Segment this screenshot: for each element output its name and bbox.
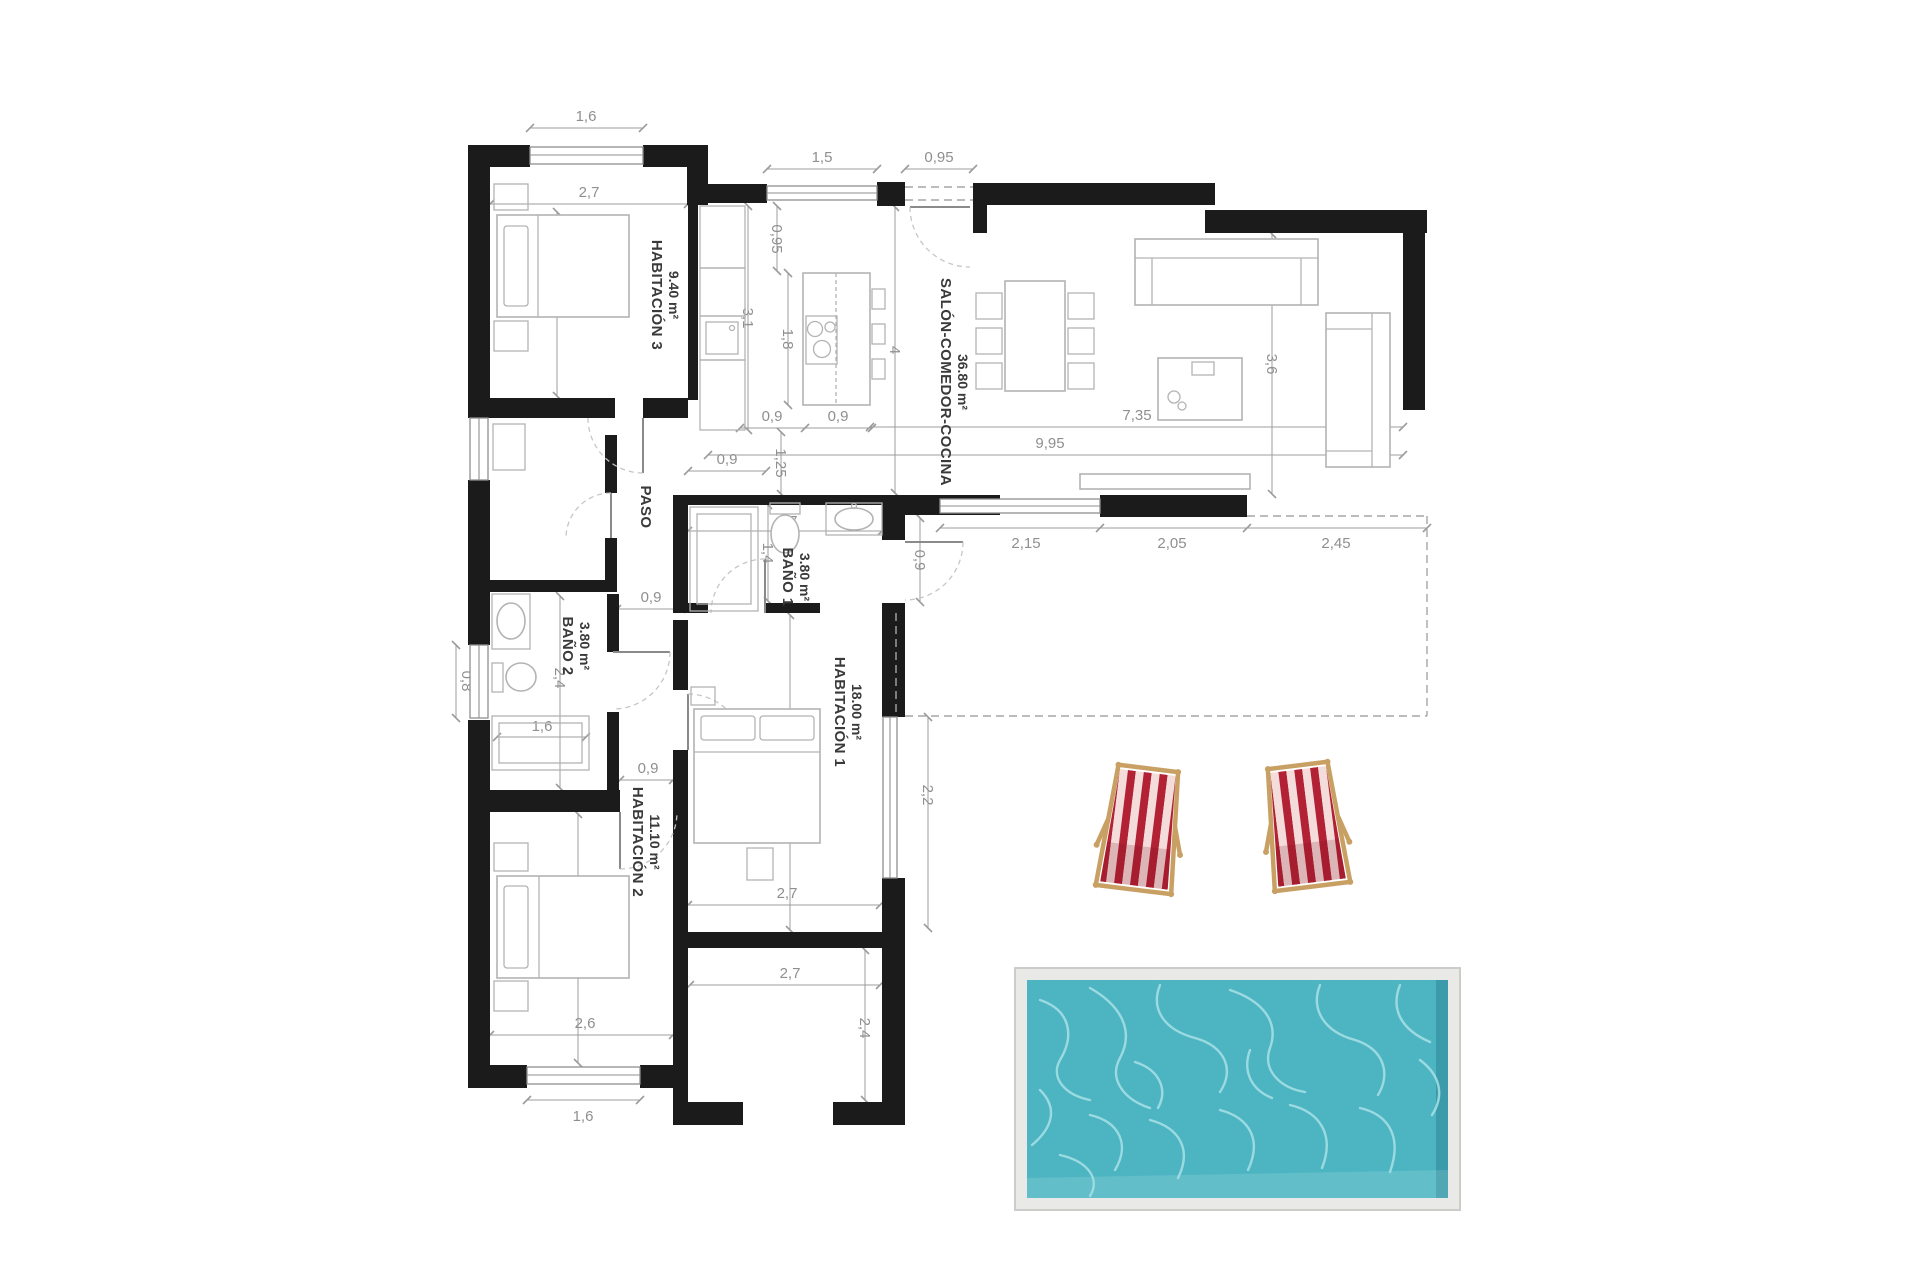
sofa-top	[1135, 239, 1318, 305]
stool	[872, 289, 885, 309]
room-label-paso: PASO	[637, 486, 654, 529]
room-label-bano-2: BAÑO 2	[559, 616, 577, 675]
dim-value: 0,9	[762, 408, 783, 425]
dim-value: 2,2	[919, 785, 936, 806]
window-salon-sliding-door	[940, 499, 1100, 513]
toilet-tank	[492, 663, 503, 692]
dim-salon-length: 9,95	[708, 435, 1403, 455]
stool	[872, 359, 885, 379]
room-area-bano-1: 3.80 m²	[797, 553, 813, 602]
pool	[1015, 968, 1460, 1210]
dim-value: 4	[886, 346, 903, 354]
room-area-habitacion-3: 9.40 m²	[666, 271, 682, 320]
dim-value: 2,15	[1011, 535, 1040, 552]
deck-chair-right	[1253, 757, 1358, 895]
bench	[747, 848, 773, 880]
dim-hab2-door: 0,9	[620, 760, 673, 780]
dim-value: 2,4	[856, 1018, 873, 1039]
window-kitchen-top	[767, 186, 877, 200]
sink	[497, 603, 525, 639]
paso-closet-shelf	[493, 424, 525, 470]
dim-value: 1,5	[812, 149, 833, 166]
dim-value: 0,9	[828, 408, 849, 425]
room-area-habitacion-1: 18.00 m²	[849, 684, 865, 740]
dim-hab2-width: 2,6	[490, 1015, 673, 1035]
room-label-salon: SALÓN-COMEDOR-COCINA	[937, 278, 955, 486]
chair	[1068, 328, 1094, 354]
dim-bano2-shower: 1,6	[497, 718, 586, 737]
dim-value: 0,9	[717, 451, 738, 468]
dim-kitchen-island: 1,8	[779, 273, 796, 405]
dim-value: 2,7	[777, 885, 798, 902]
dim-hab1-width: 2,7	[688, 885, 880, 905]
window-hab1-right	[883, 717, 897, 878]
dim-value: 1,6	[532, 718, 553, 735]
room-label-habitacion-2: HABITACIÓN 2	[629, 787, 647, 897]
dim-value: 1,8	[779, 329, 796, 350]
dim-terrace-open: 2,45	[1247, 528, 1427, 552]
dim-kitchen-depth-upper: 0,95	[768, 206, 785, 271]
dim-entry-opening: 0,95	[905, 149, 973, 169]
dim-value: 0,9	[911, 550, 928, 571]
room-label-habitacion-1: HABITACIÓN 1	[831, 657, 849, 767]
sofa-right	[1326, 313, 1390, 467]
dim-porch-depth: 2,4	[856, 950, 873, 1100]
room-area-bano-2: 3.80 m²	[577, 622, 593, 671]
tv-sideboard	[1080, 474, 1250, 489]
shower	[690, 507, 758, 611]
dining-table	[976, 281, 1094, 391]
window-paso-left	[470, 418, 488, 480]
dim-terrace-side: 2,2	[919, 717, 936, 928]
dim-value: 3,6	[1263, 354, 1280, 375]
room-area-salon: 36.80 m²	[955, 354, 971, 410]
toilet	[506, 663, 536, 691]
dim-value: 2,45	[1321, 535, 1350, 552]
floor-plan: 1,6 2,7 3,5 1,5 0,95 0,95 3,1 1,8	[0, 0, 1920, 1280]
dim-bano1-depth: 1,4	[759, 505, 776, 601]
stool	[872, 324, 885, 344]
deck-chair-left	[1088, 760, 1193, 898]
dim-value: 0,95	[768, 224, 785, 253]
dim-paso-upper: 0,9	[688, 451, 766, 471]
deck-chairs	[1088, 757, 1357, 898]
floor-plan-canvas: 1,6 2,7 3,5 1,5 0,95 0,95 3,1 1,8	[0, 0, 1920, 1280]
dim-value: 7,35	[1122, 407, 1151, 424]
chair	[976, 293, 1002, 319]
dim-kitchen-below-left: 0,9	[740, 408, 805, 428]
dim-passage-kitchen: 1,25	[772, 432, 789, 494]
window-hab2-bottom	[527, 1067, 640, 1084]
bed-habitacion-2	[494, 843, 629, 1011]
dim-value: 2,7	[579, 184, 600, 201]
dim-value: 2,7	[780, 965, 801, 982]
dim-value: 0,9	[638, 760, 659, 777]
room-area-habitacion-2: 11.10 m²	[647, 814, 663, 870]
door-bano1	[711, 559, 765, 613]
dim-terrace-window: 2,05	[1100, 528, 1247, 552]
pool-water	[1027, 980, 1448, 1198]
chair	[1068, 363, 1094, 389]
bed-habitacion-3	[494, 184, 629, 351]
entry-opening-dashes	[905, 187, 973, 200]
coffee-table	[1158, 358, 1242, 420]
kitchen-island	[803, 273, 885, 405]
chair	[976, 363, 1002, 389]
dim-value: 9,95	[1035, 435, 1064, 452]
dim-value: 0,95	[924, 149, 953, 166]
kitchen-counter	[700, 206, 745, 430]
window-hab3-top	[530, 147, 643, 164]
dim-kitchen-below-island: 0,9	[805, 408, 872, 428]
door-entrance	[910, 207, 970, 267]
room-label-habitacion-3: HABITACIÓN 3	[648, 240, 666, 350]
dim-hab3-window-top: 1,6	[530, 108, 643, 128]
door-closet	[566, 493, 611, 538]
sink	[835, 508, 873, 530]
dim-value: 2,05	[1157, 535, 1186, 552]
dim-value: 2,6	[575, 1015, 596, 1032]
dim-value: 3,1	[739, 308, 756, 329]
dim-value: 0,9	[641, 589, 662, 606]
door-bano2	[613, 652, 670, 709]
room-label-bano-1: BAÑO 1	[779, 547, 797, 606]
dim-value: 1,25	[772, 448, 789, 477]
chair	[976, 328, 1002, 354]
chair	[1068, 293, 1094, 319]
dim-kitchen-counter: 3,1	[739, 206, 756, 430]
dim-value: 1,6	[573, 1108, 594, 1125]
dim-kitchen-window: 1,5	[767, 149, 877, 169]
dim-hab3-width: 2,7	[490, 184, 688, 204]
dim-value: 1,6	[576, 108, 597, 125]
dim-hab2-window-bottom: 1,6	[527, 1100, 640, 1125]
bed-habitacion-1	[691, 687, 820, 880]
dim-porch-width: 2,7	[690, 965, 880, 985]
dim-terrace-door: 2,15	[940, 528, 1100, 552]
dim-salon-depth-left: 4	[886, 207, 903, 493]
dim-terrace-offset: 0,9	[911, 518, 928, 602]
window-bano2-left	[470, 645, 488, 718]
